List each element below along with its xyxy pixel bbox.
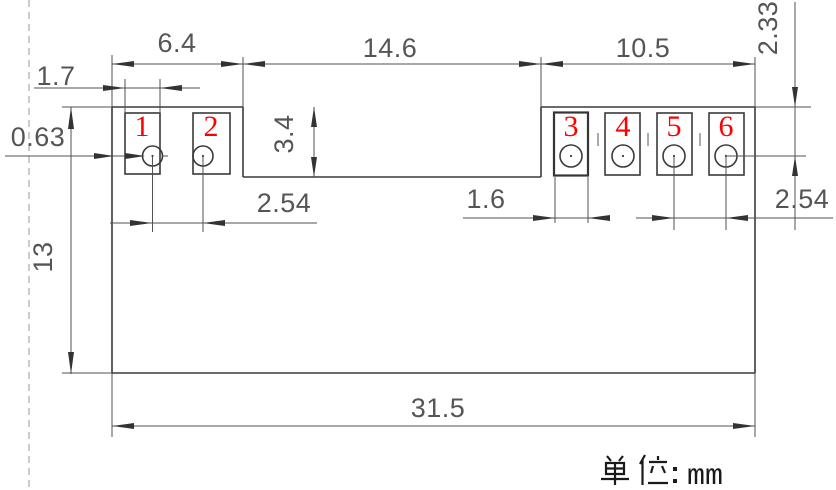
dim-text-hole-pitch-right: 2.54 [775,184,830,214]
arrowhead [68,107,74,129]
arrowhead [541,61,563,67]
dim-text-edge-to-pad-gap: 0.63 [11,122,66,152]
pad-1: 1 [125,110,163,174]
arrowhead [243,61,265,67]
arrowhead [588,215,610,221]
pad-number: 5 [667,110,682,143]
arrowhead [203,220,225,226]
arrowhead [792,156,798,176]
pad-4: 4 [605,110,640,175]
dim-text-overall-width: 31.5 [411,393,466,423]
arrowhead [103,85,125,91]
arrowhead [311,157,317,177]
dim-text-step-depth: 3.4 [269,114,299,153]
arrowhead [652,215,674,221]
extension-lines [62,55,811,437]
pad-number: 6 [719,110,734,143]
hole-center-mark [622,155,624,157]
arrowhead [221,61,243,67]
arrowhead [112,423,134,429]
dim-text-right-section-width: 10.5 [616,33,671,63]
arrowhead [733,423,755,429]
pad-number: 3 [564,110,579,143]
dim-text-left-section-width: 6.4 [157,28,196,58]
arrowhead [94,153,114,159]
unit-label-colon [673,467,677,483]
unit-value-text: mm [687,460,723,490]
dim-text-middle-section-width: 14.6 [363,33,418,63]
arrowhead [160,85,182,91]
arrowhead [112,61,134,67]
unit-label: mm [601,455,723,490]
dimension-drawing-svg: 1 2 3 4 5 6 [0,0,836,490]
unit-label-char-dan [601,456,629,485]
pad-3: 3 [554,110,588,176]
arrowhead [726,215,748,221]
drawing-canvas: 1 2 3 4 5 6 [0,0,836,490]
pad-number: 1 [135,110,150,143]
arrowhead [792,87,798,107]
arrowhead [311,107,317,127]
dim-text-overall-height: 13 [28,241,58,272]
dim-text-top-to-hole-center: 2.33 [753,1,783,56]
pad-number: 2 [204,110,219,143]
inter-pad-ticks [598,133,700,146]
dim-text-right-pad-width: 1.6 [466,184,505,214]
arrowhead [733,61,755,67]
dim-text-left-pad-width: 1.7 [36,61,75,91]
hole-center-mark [570,155,572,157]
pad-2: 2 [193,110,230,174]
pad-number: 4 [616,110,631,143]
arrowhead [68,352,74,374]
arrowhead [519,61,541,67]
arrowhead [130,220,152,226]
unit-label-char-wei [640,455,668,485]
dim-text-hole-pitch-left: 2.54 [257,188,312,218]
arrowhead [533,215,555,221]
